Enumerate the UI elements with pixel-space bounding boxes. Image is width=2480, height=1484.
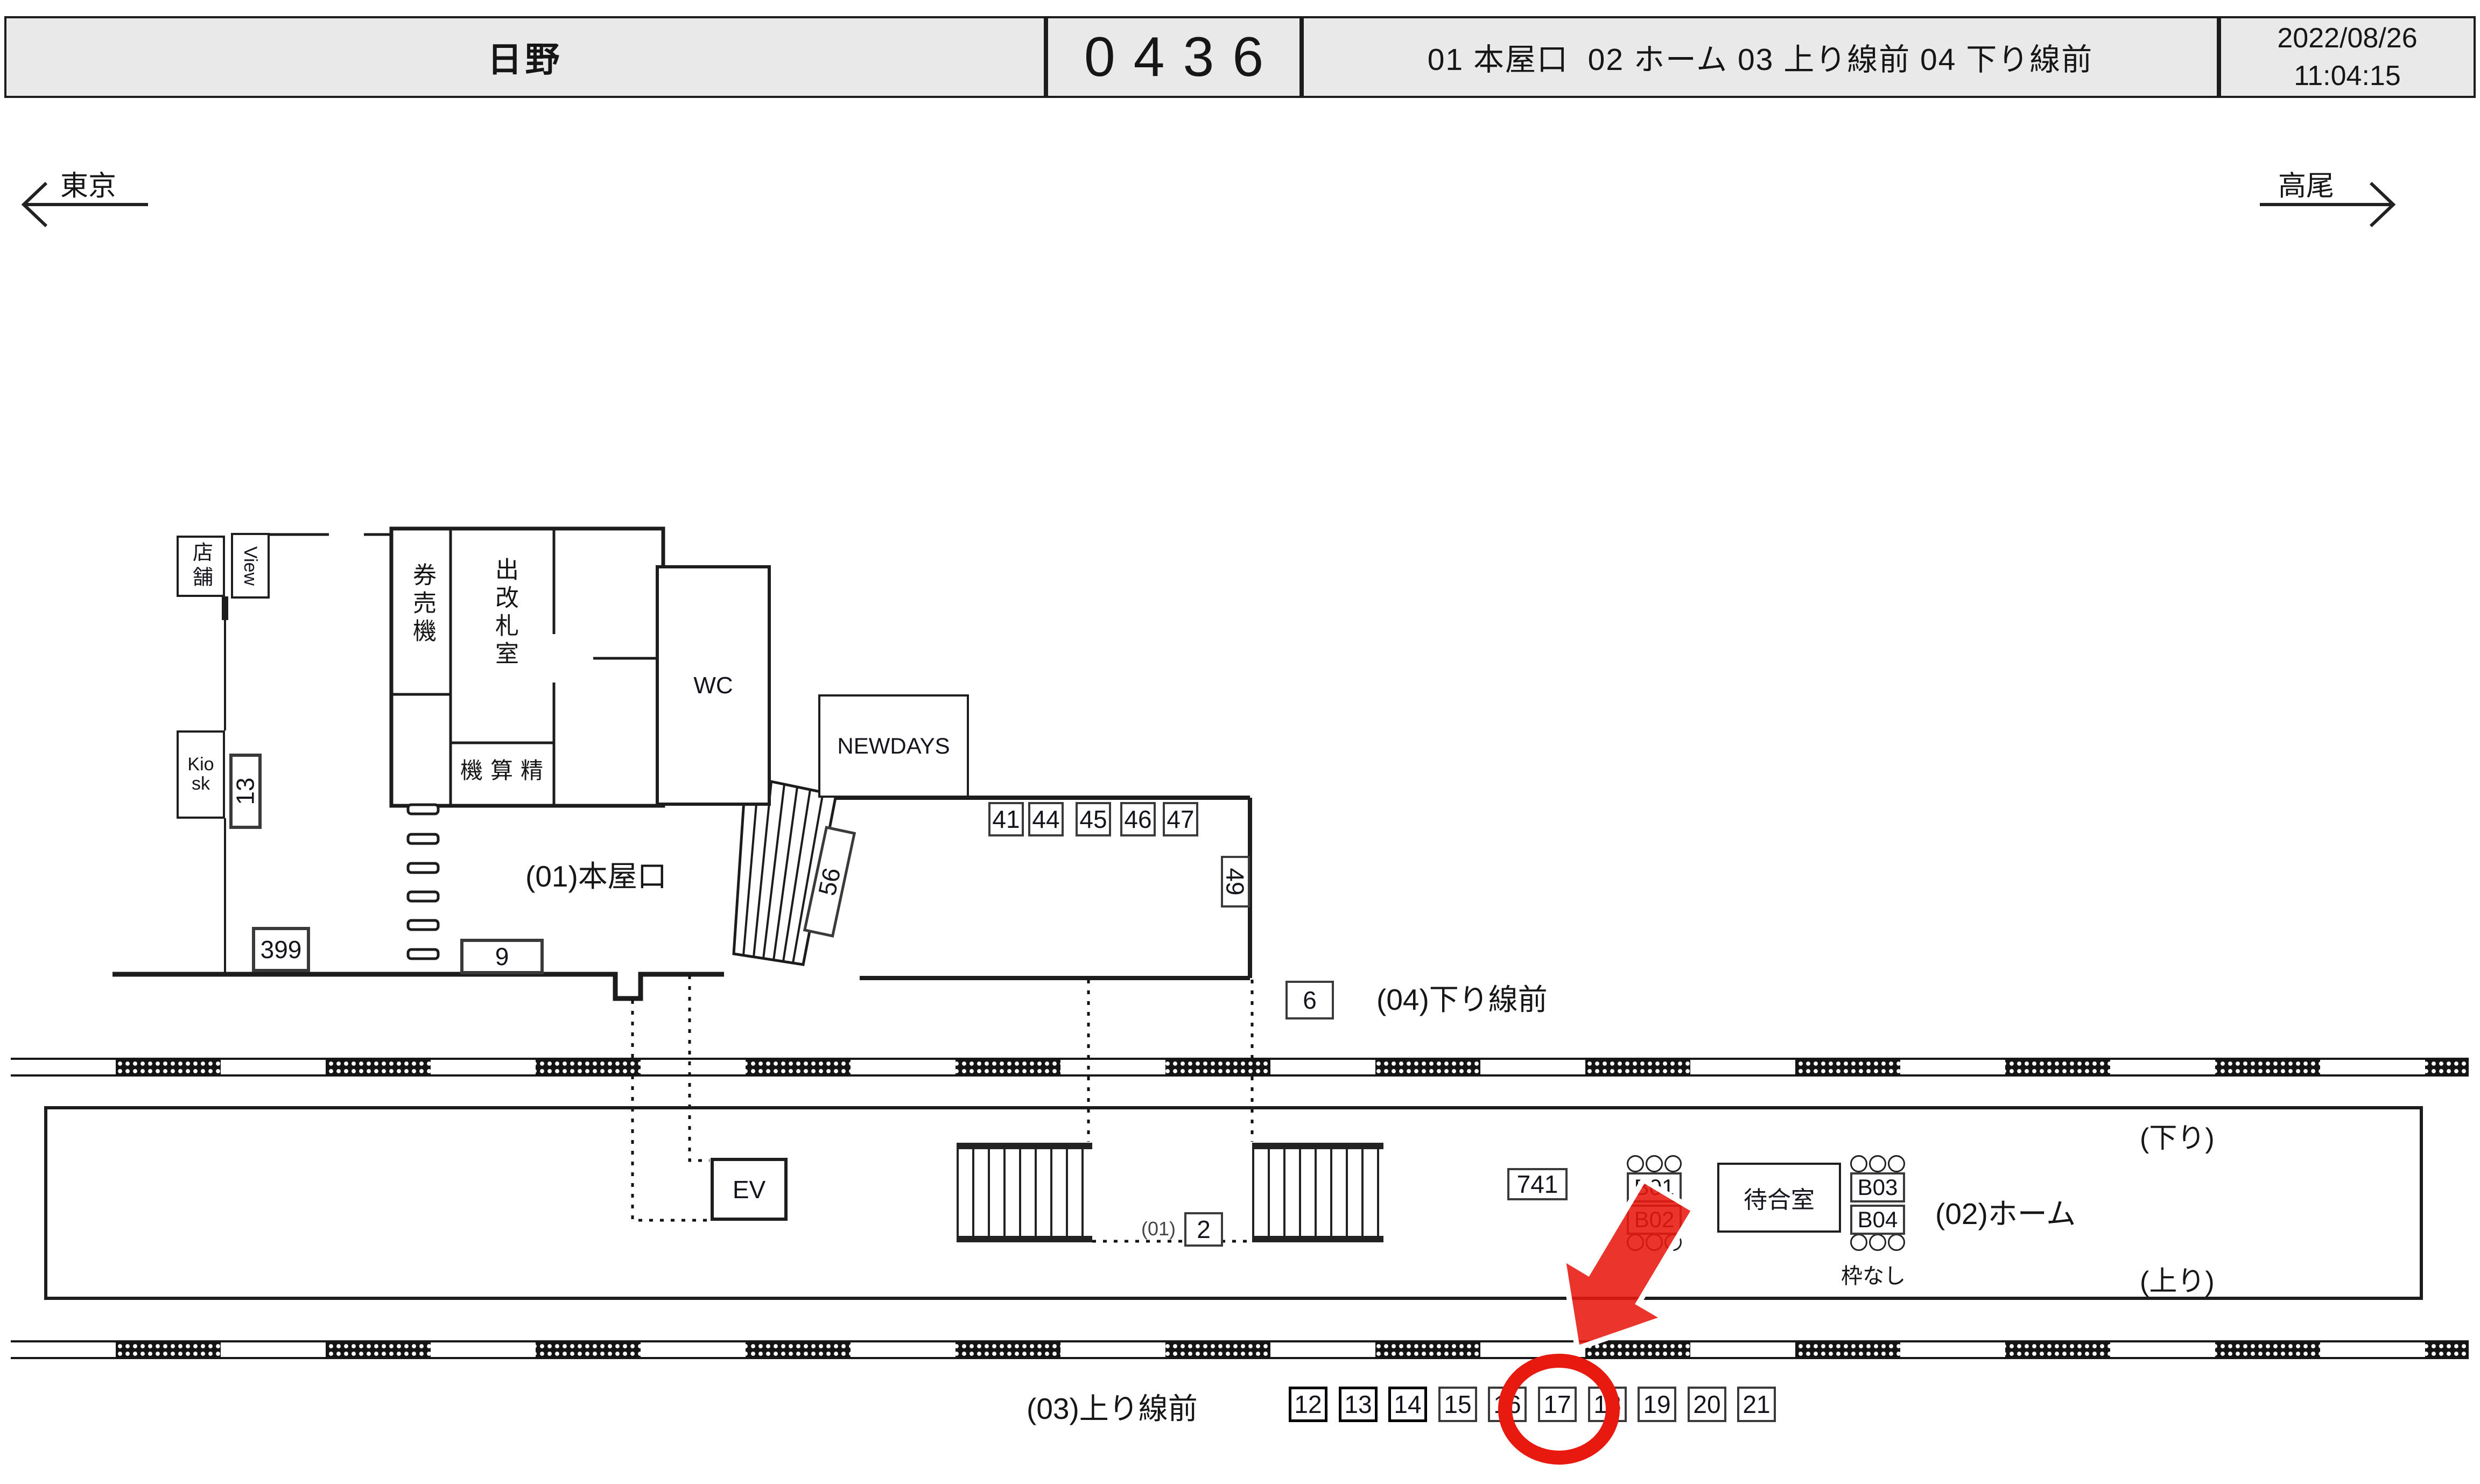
area-label-03: (03)上り線前 (1027, 1384, 1198, 1427)
station-map-page: 日野 0436 01 本屋口 02 ホーム 03 上り線前 04 下り線前 20… (0, 0, 2480, 1484)
room-view: View (231, 533, 270, 599)
ad-plate-41[interactable]: 41 (988, 802, 1024, 836)
area-label-02: (02)ホーム (1935, 1190, 2076, 1233)
room-tenpo: 店舗 (177, 536, 225, 597)
room-kenbaiki-label: 券売機 (405, 562, 439, 646)
bench-dots (1850, 1155, 1905, 1172)
pos-prefix-label: (01) (1141, 1218, 1176, 1240)
area-label-04: (04)下り線前 (1376, 975, 1548, 1018)
track-down-line (11, 1058, 2469, 1077)
ad-plate-13[interactable]: 13 (1339, 1387, 1378, 1422)
ad-plate-15[interactable]: 15 (1438, 1387, 1477, 1422)
ad-plate-45[interactable]: 45 (1076, 802, 1111, 836)
room-ev: EV (711, 1158, 788, 1221)
room-kaisatsu-label: 出改札室 (487, 557, 522, 669)
floorplan-linework (0, 0, 2480, 1484)
ad-plate-B02[interactable]: B02 (1627, 1205, 1682, 1235)
ad-plate-6[interactable]: 6 (1285, 981, 1334, 1019)
ticket-gate-icons (408, 805, 438, 959)
ad-plate-B03[interactable]: B03 (1850, 1172, 1905, 1202)
area-label-01: (01)本屋口 (525, 852, 667, 895)
bench-dots (1850, 1234, 1905, 1251)
platform-stairs-right (1252, 1143, 1383, 1242)
ad-plate-399[interactable]: 399 (252, 927, 310, 972)
left-arrow-icon (24, 183, 148, 226)
ad-plate-B01[interactable]: B01 (1627, 1172, 1682, 1202)
ad-plate-47[interactable]: 47 (1163, 802, 1198, 836)
ad-plate-B04[interactable]: B04 (1850, 1205, 1905, 1235)
ad-plate-21[interactable]: 21 (1737, 1387, 1776, 1422)
ad-plate-18[interactable]: 18 (1588, 1387, 1627, 1422)
ad-plate-44[interactable]: 44 (1028, 802, 1064, 836)
room-wc: WC (656, 565, 771, 806)
bench-dots (1627, 1234, 1682, 1251)
track-up-line (11, 1340, 2469, 1359)
room-kiosk: Kiosk (177, 730, 225, 819)
ad-plate-19[interactable]: 19 (1638, 1387, 1676, 1422)
room-waiting: 待合室 (1717, 1163, 1841, 1233)
down-direction-label: (下り) (2140, 1115, 2215, 1156)
ad-plate-13-wall[interactable]: 13 (229, 754, 262, 829)
wakunashi-label: 枠なし (1841, 1258, 1906, 1290)
ad-plate-49[interactable]: 49 (1221, 856, 1250, 908)
ad-plate-17[interactable]: 17 (1538, 1387, 1577, 1422)
bench-dots (1627, 1155, 1682, 1172)
room-newdays: NEWDAYS (818, 694, 969, 798)
right-arrow-icon (2260, 183, 2393, 226)
ad-plate-46[interactable]: 46 (1120, 802, 1156, 836)
ad-plate-16[interactable]: 16 (1488, 1387, 1527, 1422)
ad-plate-12[interactable]: 12 (1289, 1387, 1327, 1422)
ad-plate-14[interactable]: 14 (1388, 1387, 1427, 1422)
room-seisanki-label: 機算精 (460, 752, 551, 785)
ad-plate-741[interactable]: 741 (1507, 1168, 1568, 1200)
ad-plate-9[interactable]: 9 (460, 939, 544, 974)
ad-plate-20[interactable]: 20 (1688, 1387, 1726, 1422)
ad-plate-2[interactable]: 2 (1184, 1212, 1223, 1247)
up-direction-label: (上り) (2140, 1258, 2215, 1299)
platform-stairs-left (957, 1143, 1092, 1242)
